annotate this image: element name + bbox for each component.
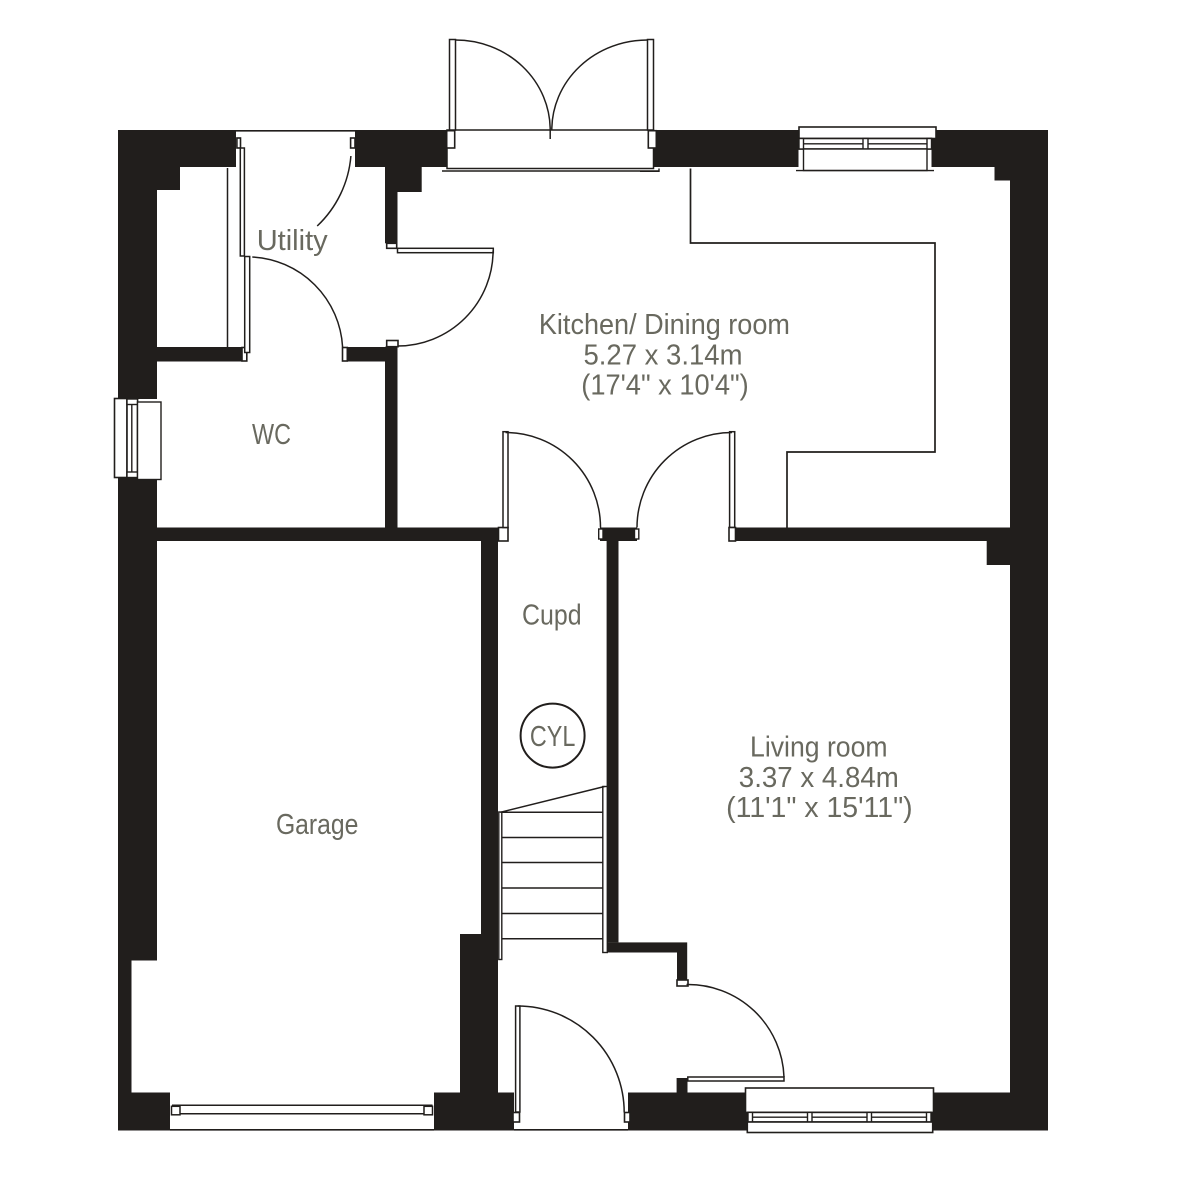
svg-text:(11'1" x 15'11"): (11'1" x 15'11") [726, 792, 913, 824]
svg-text:Cupd: Cupd [522, 600, 582, 632]
svg-text:Garage: Garage [276, 809, 359, 841]
svg-text:3.37 x 4.84m: 3.37 x 4.84m [739, 762, 899, 794]
svg-text:WC: WC [252, 419, 291, 451]
svg-text:(17'4" x 10'4"): (17'4" x 10'4") [581, 370, 749, 402]
svg-text:CYL: CYL [530, 721, 576, 753]
svg-text:Kitchen/ Dining room: Kitchen/ Dining room [539, 309, 790, 341]
svg-text:5.27 x 3.14m: 5.27 x 3.14m [584, 340, 743, 372]
svg-text:Living room: Living room [750, 732, 888, 764]
svg-text:Utility: Utility [257, 225, 328, 257]
